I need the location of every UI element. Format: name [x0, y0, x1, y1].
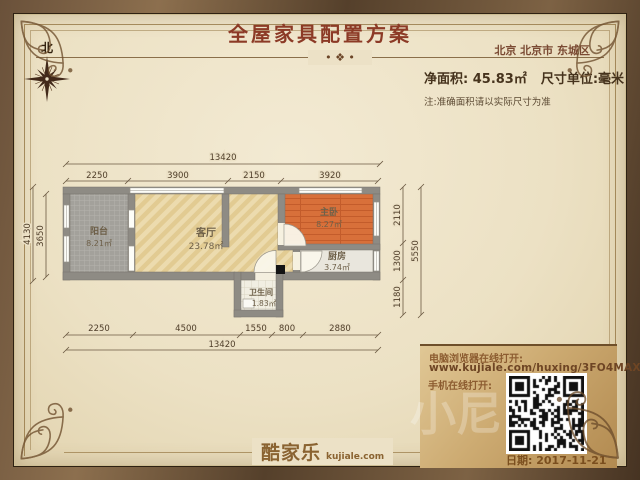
qr-code — [509, 376, 584, 451]
brand-logo: 酷家乐 kujiale.com — [252, 438, 393, 465]
brand-domain: kujiale.com — [326, 452, 384, 462]
date-label: 日期: 2017-11-21 — [506, 452, 607, 468]
qr-code-frame — [506, 373, 587, 454]
net-area-value: 净面积: 45.83㎡ — [424, 72, 527, 87]
watermark: 小尼 — [410, 378, 502, 444]
brand-name: 酷家乐 — [261, 438, 321, 465]
plate: 全屋家具配置方案 北京 北京市 东城区 • ❖ • 净面积: 45.83㎡尺寸单… — [0, 0, 640, 480]
rule-ornament-icon: • ❖ • — [308, 50, 372, 65]
net-area-line: 净面积: 45.83㎡尺寸单位:毫米 — [424, 68, 624, 87]
location-text: 北京 北京市 东城区 — [494, 42, 590, 58]
area-note: 注:准确面积请以实际尺寸为准 — [424, 94, 551, 108]
unit-label: 尺寸单位:毫米 — [541, 72, 624, 87]
